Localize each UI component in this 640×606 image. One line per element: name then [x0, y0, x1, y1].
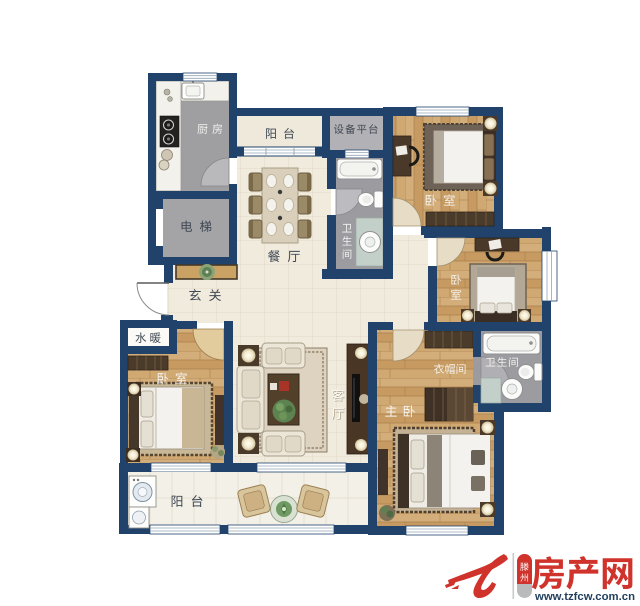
svg-text:www.tzfcw.com.cn: www.tzfcw.com.cn: [534, 591, 635, 603]
